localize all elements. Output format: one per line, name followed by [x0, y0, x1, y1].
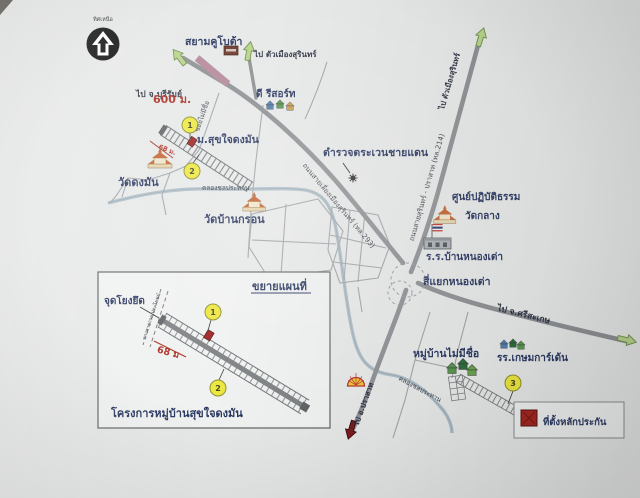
label-kasem-garden: รร.เกษมการ์เด้น — [497, 352, 568, 364]
d-resort-houses-icon — [266, 100, 294, 110]
arrow-to-buriram — [169, 46, 189, 68]
label-to-surin-city: ไป ตัวเมืองสุรินทร์ — [253, 49, 317, 60]
marker-2-number: 2 — [189, 167, 195, 176]
compass-north: ทิศเหนือ — [87, 16, 120, 61]
kasem-garden-houses-icon — [500, 339, 525, 349]
label-to-surin-214: ไป ตัวเมืองสุรินทร์ — [436, 51, 462, 112]
inset-anchor-point: จุดโยงยึด — [104, 294, 145, 307]
label-nongtao-intersection: สี่แยกหนองเต่า — [422, 273, 490, 288]
label-village-noname: หมู่บ้านไม่มีชื่อ — [413, 345, 479, 361]
inset-project-name: โครงการหมู่บ้านสุขใจดงมัน — [110, 406, 243, 421]
compass-label: ทิศเหนือ — [93, 16, 113, 23]
label-mu-sukjai: ม.สุขใจดงมัน — [197, 132, 260, 147]
thai-flag-icon — [433, 224, 443, 231]
label-canal-west: คลองชลประทาน — [202, 184, 250, 192]
legend-collateral-label: ที่ตั้งหลักประกัน — [543, 414, 607, 428]
collateral-parcel-main — [187, 136, 197, 147]
label-to-prasat: ไป อ.ปราสาท — [350, 381, 375, 428]
label-school-nongtao: ร.ร.บ้านหนองเต่า — [426, 251, 503, 263]
label-border-patrol: ตำรวจตระเวนชายแดน — [323, 147, 429, 159]
label-siam-kubota: สยามคูโบต้า — [185, 35, 243, 49]
arrow-to-sisaket — [617, 333, 638, 348]
label-soi-noname: ซอยไม่มีชื่อ — [192, 99, 211, 133]
wat-klang-temple-icon — [434, 205, 456, 223]
arrow-to-surin-214 — [473, 26, 489, 47]
label-wat-klang: วัดกลาง — [465, 210, 500, 222]
wat-bankron-temple-icon — [243, 192, 266, 211]
border-patrol-icon — [343, 163, 358, 183]
label-600m: 600 ม. — [153, 93, 191, 106]
label-wat-bankron: วัดบ้านกรอน — [204, 213, 265, 226]
inset-marker-2-number: 2 — [215, 384, 221, 393]
site-map: ทิศเหนือ — [0, 0, 640, 498]
marker-3: 3 — [505, 375, 521, 404]
road-to-surin-city — [249, 58, 256, 98]
label-wat-dongman: วัดดงมัน — [118, 176, 159, 189]
shell-station-icon — [348, 373, 365, 386]
marker-3-number: 3 — [510, 379, 516, 388]
inset-enlarged-map: ขยายแผนที่ จุดโยงยึด ทางสาธารณประโยชน์ 6… — [98, 272, 330, 428]
village-houses-icon — [447, 359, 478, 376]
inset-title: ขยายแผนที่ — [252, 278, 307, 293]
label-to-sisaket: ไป จ.ศรีสะเกษ — [495, 302, 552, 326]
map-photo: ทิศเหนือ — [0, 0, 640, 498]
label-dhamma-center: ศูนย์ปฏิบัติธรรม — [452, 191, 520, 204]
photo-corner-shadow — [0, 0, 13, 15]
inset-marker-1-number: 1 — [210, 308, 216, 317]
marker-1-number: 1 — [187, 121, 193, 130]
label-canal-south: คลองชลประทาน — [397, 375, 443, 405]
label-d-resort: ดี รีสอร์ท — [256, 88, 296, 100]
legend: ที่ตั้งหลักประกัน — [514, 402, 624, 438]
